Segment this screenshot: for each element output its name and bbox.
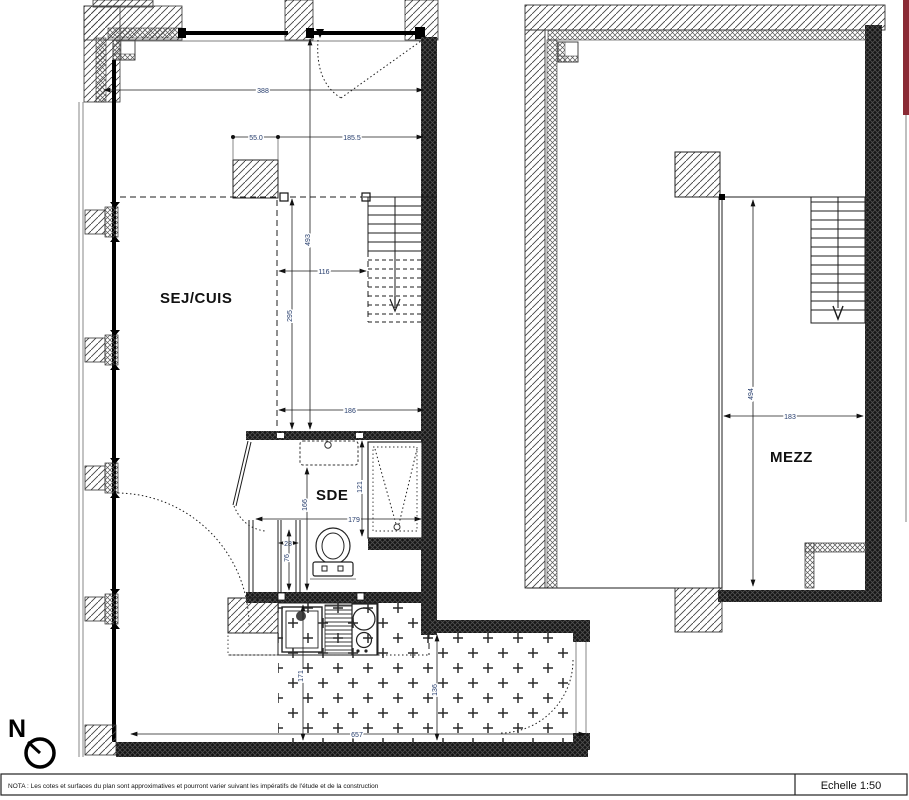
washbasin	[300, 441, 358, 465]
dim-wc-niche-width: 28	[284, 541, 292, 548]
left-glazed-facade	[79, 60, 120, 757]
floor-plan-sheet: SDE	[0, 0, 909, 800]
dim-mezz-width: 183	[784, 414, 796, 421]
dim-sde-left-height: 166	[302, 499, 309, 511]
nota-text: NOTA : Les cotes et surfaces du plan son…	[8, 783, 379, 790]
mezzanine-edge-dashed	[120, 193, 370, 430]
room-label-mezz: MEZZ	[770, 449, 813, 466]
kitchen-side-block	[228, 598, 278, 655]
room-label-sej-cuis: SEJ/CUIS	[160, 290, 232, 307]
dim-top-seg-left: 55.0	[249, 135, 263, 142]
entry-door-swing	[318, 40, 421, 98]
north-arrow: N	[8, 715, 54, 767]
shower-foot-wall	[368, 538, 424, 550]
pilaster	[85, 458, 120, 498]
dim-terrace-left-height: 171	[298, 670, 305, 682]
floor-plan-drawing: SDE	[0, 0, 909, 800]
dim-mezz-depth: 494	[748, 388, 755, 400]
edge-accent	[903, 0, 909, 522]
staircase-right-unit	[811, 197, 865, 323]
dim-top-total: 388	[257, 88, 269, 95]
toilet	[310, 528, 356, 579]
north-label: N	[8, 715, 26, 743]
mezz-corner-column	[558, 42, 578, 62]
dim-shower-depth: 121	[357, 481, 364, 493]
corner-pilaster	[85, 725, 116, 755]
pilaster	[85, 330, 120, 370]
dim-sde-top-width: 186	[344, 408, 356, 415]
dim-stair-width: 116	[318, 269, 329, 276]
compass-needle	[28, 742, 40, 753]
dim-terrace-width: 657	[351, 732, 363, 739]
sde-room: SDE	[233, 431, 437, 592]
dim-sde-mid-width: 179	[348, 517, 360, 524]
dim-left-height-lower: 295	[287, 310, 294, 322]
room-label-sde: SDE	[316, 487, 348, 504]
mezz-floor-edge	[719, 194, 811, 588]
pilaster	[85, 202, 120, 242]
sde-door	[233, 441, 265, 531]
dim-left-height-total: 493	[305, 234, 312, 246]
dim-top-seg-right: 185.5	[343, 135, 361, 142]
mezz-chimney-block	[675, 152, 720, 197]
right-structural-wall	[421, 37, 437, 563]
dim-terrace-right-height: 136	[432, 684, 439, 696]
pilaster	[85, 589, 120, 629]
mezz-bottom-pocket	[805, 543, 867, 588]
title-bar: NOTA : Les cotes et surfaces du plan son…	[1, 774, 907, 795]
accent-strip	[903, 0, 909, 115]
right-unit-mezzanine: MEZZ	[525, 5, 885, 632]
shower	[368, 442, 422, 538]
chimney-block	[233, 160, 278, 198]
hatched-walls	[84, 0, 438, 102]
left-unit-ground-floor: SDE	[79, 0, 590, 757]
dim-wc-niche-depth: 76	[284, 554, 291, 562]
scale-label: Echelle 1:50	[821, 780, 882, 792]
